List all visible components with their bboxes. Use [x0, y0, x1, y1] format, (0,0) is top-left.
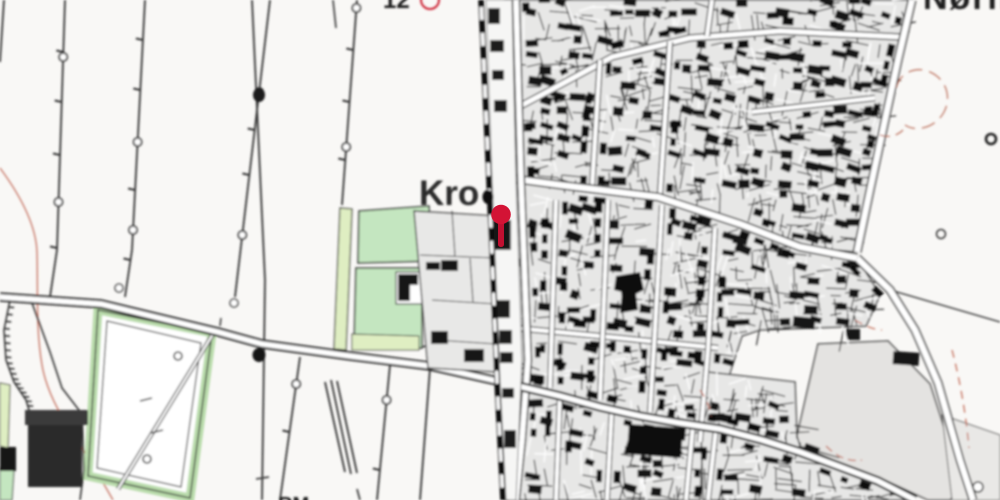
svg-text:Nørh: Nørh	[923, 0, 1000, 17]
svg-text:Kro: Kro	[419, 174, 479, 213]
svg-text:12: 12	[383, 0, 410, 14]
svg-text:RM: RM	[278, 494, 309, 500]
